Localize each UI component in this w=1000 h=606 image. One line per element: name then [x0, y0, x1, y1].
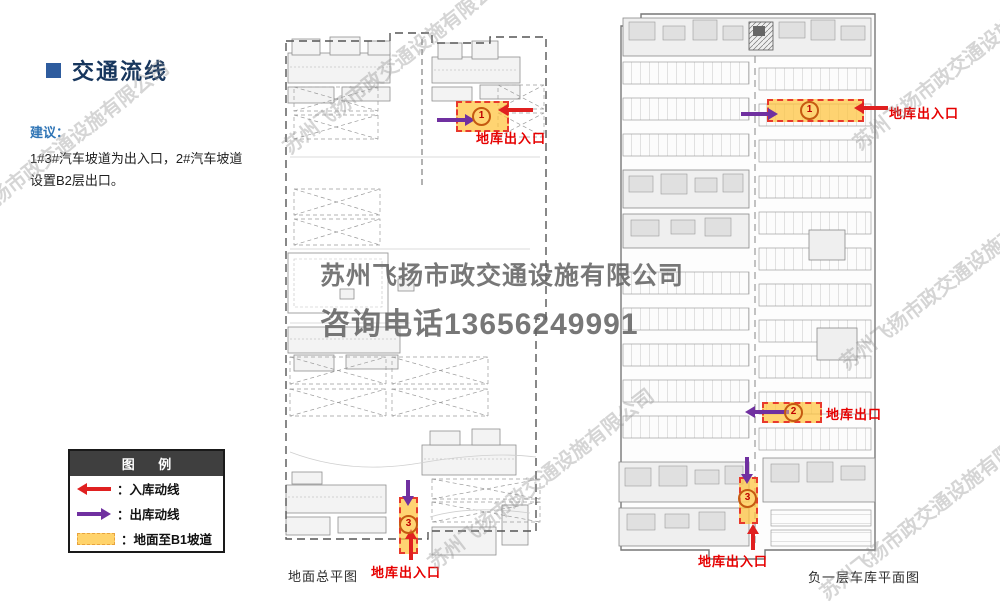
- zone-number-badge-basement-3: 3: [738, 489, 757, 508]
- inbound-arrow-basement-3: [747, 524, 759, 550]
- legend-item-label: ：入库动线: [117, 479, 180, 498]
- advice-line-1: 1#3#汽车坡道为出入口，2#汽车坡道: [30, 148, 275, 170]
- red-left-arrow-icon: [77, 483, 111, 495]
- zone-label-basement-2: 地库出口: [826, 404, 882, 423]
- legend-item-inbound: ：入库动线: [70, 476, 223, 501]
- basement-plan-caption: 负一层车库平面图: [808, 567, 920, 586]
- legend: 图 例 ：入库动线 ：出库动线 ：地面至B1坡道: [68, 449, 225, 553]
- advice-heading: 建议：: [30, 122, 275, 141]
- legend-item-outbound: ：出库动线: [70, 501, 223, 526]
- inbound-arrow-basement-1: [854, 102, 888, 114]
- advice-block: 建议： 1#3#汽车坡道为出入口，2#汽车坡道 设置B2层出口。: [30, 122, 275, 192]
- purple-right-arrow-icon: [77, 508, 111, 520]
- outbound-arrow-ground-1: [437, 114, 475, 126]
- legend-item-ramp: ：地面至B1坡道: [70, 526, 223, 551]
- legend-item-label: ：出库动线: [117, 504, 180, 523]
- outbound-arrow-basement-3: [741, 457, 753, 484]
- outbound-arrow-ground-3: [402, 480, 414, 506]
- slide: { "title": { "text": "交通流线" }, "advice":…: [0, 0, 1000, 588]
- legend-item-label: ：地面至B1坡道: [121, 529, 212, 548]
- zone-number-badge-basement-2: 2: [784, 403, 803, 422]
- zone-label-ground-3: 地库出入口: [371, 562, 441, 581]
- ground-plan-caption: 地面总平图: [288, 566, 358, 585]
- page-title: 交通流线: [72, 54, 168, 86]
- inbound-arrow-ground-1: [498, 104, 533, 116]
- zone-number-badge-ground-3: 3: [399, 515, 418, 534]
- zone-label-basement-3: 地库出入口: [698, 551, 768, 570]
- outbound-arrow-basement-1: [741, 108, 778, 120]
- zone-number-badge-ground-1: 1: [472, 107, 491, 126]
- page-title-row: 交通流线: [46, 54, 168, 86]
- zone-label-ground-1: 地库出入口: [476, 128, 546, 147]
- orange-ramp-swatch-icon: [77, 533, 115, 545]
- zone-number-badge-basement-1: 1: [800, 101, 819, 120]
- legend-title: 图 例: [70, 451, 223, 476]
- outbound-arrow-basement-2: [745, 406, 789, 418]
- advice-line-2: 设置B2层出口。: [30, 170, 275, 192]
- title-bullet-square: [46, 63, 61, 78]
- zone-label-basement-1: 地库出入口: [889, 103, 959, 122]
